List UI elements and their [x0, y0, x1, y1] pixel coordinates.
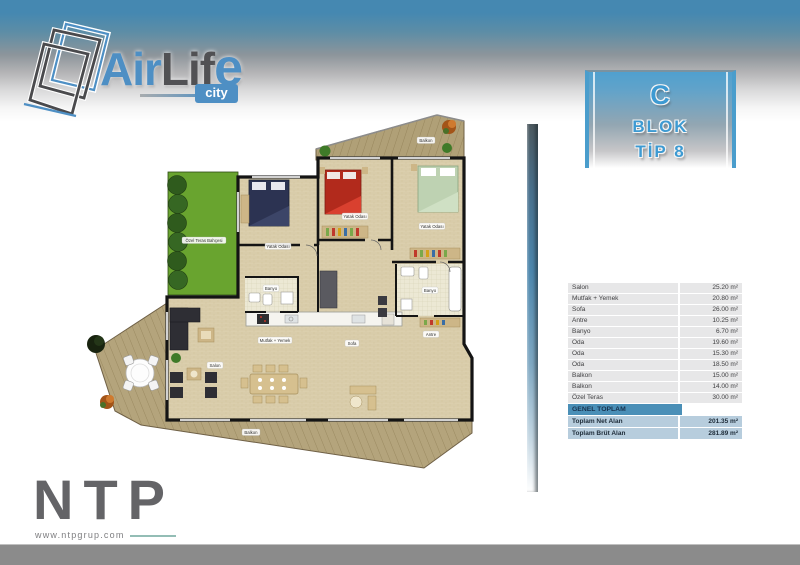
tree-icon	[87, 335, 105, 353]
hall-bench-2	[378, 308, 387, 317]
table-row: Antre10.25 m²	[568, 316, 744, 326]
svg-text:Yatak Odası: Yatak Odası	[420, 224, 443, 229]
table-row: Balkon15.00 m²	[568, 371, 744, 381]
label-banyo-2: Banyo	[422, 287, 438, 294]
label-salon: Salon	[207, 362, 223, 369]
green-bush-balcony-icon	[320, 146, 331, 157]
brand-air: Air	[100, 43, 161, 95]
wardrobe-red-room	[322, 226, 368, 238]
svg-text:Mutfak + Yemek: Mutfak + Yemek	[260, 338, 292, 343]
vertical-divider-bar	[527, 124, 538, 492]
badge-block-letter: C	[589, 80, 732, 111]
table-total-header: GENEL TOPLAM	[568, 404, 682, 415]
bed-green	[411, 164, 458, 212]
label-banyo-1: Banyo	[263, 285, 279, 292]
terrace-table-set	[123, 355, 160, 392]
bed-red	[319, 167, 368, 214]
badge-tip-label: TİP 8	[589, 142, 732, 162]
table-row: Salon25.20 m²	[568, 283, 744, 293]
table-row: Balkon14.00 m²	[568, 382, 744, 392]
label-yatak-1: Yatak Odası	[265, 243, 291, 250]
svg-text:Antre: Antre	[426, 332, 437, 337]
ntp-wordmark: NTP	[33, 472, 176, 528]
orange-bush-terrace-icon	[100, 395, 114, 409]
svg-text:Yatak Odası: Yatak Odası	[343, 214, 366, 219]
brand-city-badge: city	[195, 84, 238, 103]
label-antre: Antre	[423, 331, 439, 338]
table-row: Özel Teras30.00 m²	[568, 393, 744, 403]
table-row: Oda18.50 m²	[568, 360, 744, 370]
badge-edge-right	[726, 72, 728, 168]
table-row: Oda15.30 m²	[568, 349, 744, 359]
svg-text:Balkon: Balkon	[419, 138, 433, 143]
svg-text:Salon: Salon	[210, 363, 222, 368]
badge-blok-label: BLOK	[589, 117, 732, 137]
label-mutfak: Mutfak + Yemek	[258, 337, 292, 344]
table-row: Oda19.60 m²	[568, 338, 744, 348]
floor-plan: Balkon Yatak Odası Yatak Odası Yatak Oda…	[85, 104, 483, 508]
ntp-url-row: www.ntpgrup.com	[35, 530, 176, 540]
shoe-cabinet-antre	[420, 318, 460, 327]
label-sofa: Sofa	[345, 340, 359, 347]
area-table: Salon25.20 m² Mutfak + Yemek20.80 m² Sof…	[568, 283, 744, 440]
table-row: Mutfak + Yemek20.80 m²	[568, 294, 744, 304]
table-total-row: Toplam Brüt Alan281.89 m²	[568, 428, 744, 439]
label-balkon-bottom: Balkon	[242, 429, 260, 436]
footer-gray-bar	[0, 544, 800, 565]
table-row: Sofa26.00 m²	[568, 305, 744, 315]
table-row: Banyo6.70 m²	[568, 327, 744, 337]
svg-text:Yatak Odası: Yatak Odası	[266, 244, 289, 249]
ntp-logo: NTP www.ntpgrup.com	[33, 472, 176, 540]
hall-cabinet	[320, 271, 337, 308]
svg-text:Balkon: Balkon	[244, 430, 258, 435]
private-garden	[168, 172, 239, 295]
label-balkon-top: Balkon	[417, 137, 435, 144]
label-yatak-3: Yatak Odası	[419, 223, 445, 230]
wardrobe-green-room	[410, 248, 460, 259]
hall-bench-1	[378, 296, 387, 305]
label-garden: Özel Teras Bahçesi	[182, 237, 226, 244]
svg-text:Banyo: Banyo	[424, 288, 437, 293]
svg-text:Özel Teras Bahçesi: Özel Teras Bahçesi	[186, 238, 223, 243]
balcony-top-deck	[316, 115, 464, 160]
teal-rule	[130, 535, 176, 537]
ntp-website: www.ntpgrup.com	[35, 530, 125, 540]
block-type-badge: C BLOK TİP 8	[585, 70, 736, 168]
table-total-row: Toplam Net Alan201.35 m²	[568, 416, 744, 427]
svg-text:Banyo: Banyo	[265, 286, 278, 291]
svg-text:Sofa: Sofa	[348, 341, 357, 346]
label-yatak-2: Yatak Odası	[342, 213, 368, 220]
badge-edge-left	[593, 72, 595, 168]
